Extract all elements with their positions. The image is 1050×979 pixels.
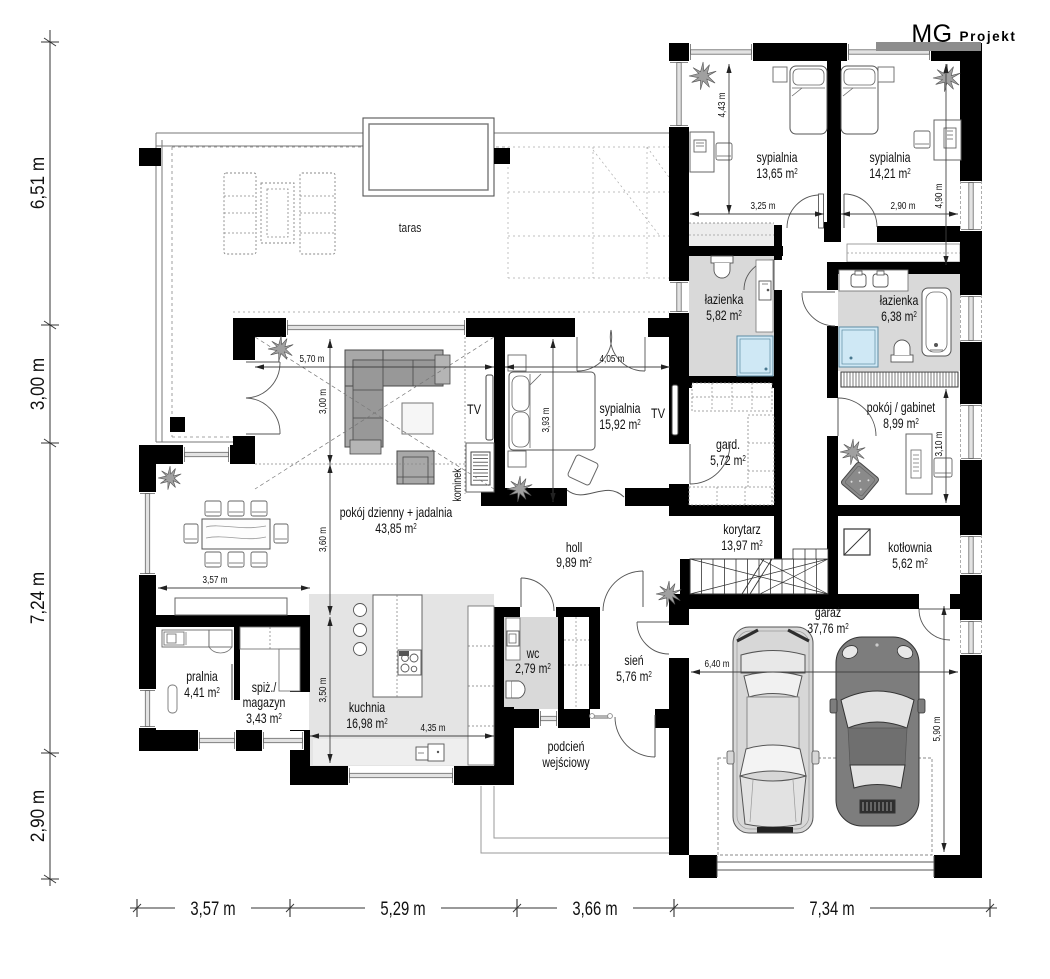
svg-text:holl: holl — [566, 540, 582, 556]
svg-text:5,76 m2: 5,76 m2 — [616, 669, 652, 685]
svg-text:3,00 m: 3,00 m — [27, 358, 48, 410]
svg-text:sypialnia: sypialnia — [757, 150, 798, 166]
svg-text:5,72 m2: 5,72 m2 — [710, 453, 746, 469]
svg-text:6,51 m: 6,51 m — [27, 157, 48, 209]
svg-text:pokój / gabinet: pokój / gabinet — [867, 400, 936, 416]
svg-text:4,43 m: 4,43 m — [715, 92, 727, 117]
svg-text:TV: TV — [467, 402, 481, 418]
svg-text:6,38 m2: 6,38 m2 — [881, 309, 917, 325]
svg-text:spiż./: spiż./ — [252, 680, 277, 696]
svg-text:6,40 m: 6,40 m — [704, 657, 729, 669]
svg-text:korytarz: korytarz — [723, 522, 760, 538]
svg-text:37,76 m2: 37,76 m2 — [807, 621, 848, 637]
svg-text:15,92 m2: 15,92 m2 — [599, 417, 640, 433]
svg-text:gard.: gard. — [716, 437, 740, 453]
svg-text:14,21 m2: 14,21 m2 — [869, 166, 910, 182]
svg-text:13,97 m2: 13,97 m2 — [721, 538, 762, 554]
svg-text:3,50 m: 3,50 m — [316, 677, 328, 702]
svg-text:8,99 m2: 8,99 m2 — [883, 416, 919, 432]
svg-text:3,25 m: 3,25 m — [750, 199, 775, 211]
svg-text:łazienka: łazienka — [705, 292, 744, 308]
svg-text:3,00 m: 3,00 m — [316, 389, 328, 414]
svg-text:2,90 m: 2,90 m — [27, 790, 48, 842]
svg-text:2,90 m: 2,90 m — [890, 199, 915, 211]
svg-text:2,79 m2: 2,79 m2 — [515, 661, 551, 677]
svg-text:3,66 m: 3,66 m — [572, 898, 617, 919]
svg-text:13,65 m2: 13,65 m2 — [756, 166, 797, 182]
svg-text:Projekt: Projekt — [960, 29, 1017, 44]
svg-text:łazienka: łazienka — [880, 293, 919, 309]
svg-text:5,62 m2: 5,62 m2 — [892, 556, 928, 572]
svg-text:3,57 m: 3,57 m — [190, 898, 235, 919]
svg-text:4,35 m: 4,35 m — [420, 721, 445, 733]
svg-text:9,89 m2: 9,89 m2 — [556, 555, 592, 571]
svg-text:7,24 m: 7,24 m — [27, 572, 48, 624]
svg-text:sypialnia: sypialnia — [870, 150, 911, 166]
svg-text:kotłownia: kotłownia — [888, 540, 932, 556]
svg-text:wc: wc — [526, 646, 540, 662]
svg-text:3,43 m2: 3,43 m2 — [246, 711, 282, 727]
svg-text:4,90 m: 4,90 m — [932, 183, 944, 208]
svg-text:3,93 m: 3,93 m — [539, 407, 551, 432]
svg-text:magazyn: magazyn — [243, 695, 286, 711]
svg-text:pralnia: pralnia — [186, 669, 218, 685]
svg-text:5,70 m: 5,70 m — [299, 352, 324, 364]
svg-text:taras: taras — [399, 221, 422, 235]
svg-text:43,85 m2: 43,85 m2 — [375, 521, 416, 537]
svg-text:MG: MG — [911, 20, 952, 48]
svg-text:sypialnia: sypialnia — [600, 401, 641, 417]
svg-text:TV: TV — [651, 406, 665, 422]
svg-text:3,10 m: 3,10 m — [932, 431, 944, 456]
svg-text:5,90 m: 5,90 m — [930, 716, 942, 741]
svg-text:kuchnia: kuchnia — [349, 700, 385, 716]
svg-text:garaż: garaż — [815, 605, 841, 621]
svg-text:pokój dzienny + jadalnia: pokój dzienny + jadalnia — [340, 505, 453, 521]
svg-text:4,41 m2: 4,41 m2 — [184, 685, 220, 701]
svg-text:5,29 m: 5,29 m — [380, 898, 425, 919]
svg-text:4,05 m: 4,05 m — [599, 352, 624, 364]
svg-text:kominek: kominek — [452, 468, 464, 502]
svg-text:podcień: podcień — [548, 739, 585, 755]
svg-text:sień: sień — [624, 653, 643, 669]
svg-text:3,60 m: 3,60 m — [316, 527, 328, 552]
svg-text:16,98 m2: 16,98 m2 — [346, 716, 387, 732]
svg-text:7,34 m: 7,34 m — [809, 898, 854, 919]
svg-text:5,82 m2: 5,82 m2 — [706, 308, 742, 324]
svg-text:3,57 m: 3,57 m — [202, 573, 227, 585]
svg-text:wejściowy: wejściowy — [541, 755, 590, 771]
